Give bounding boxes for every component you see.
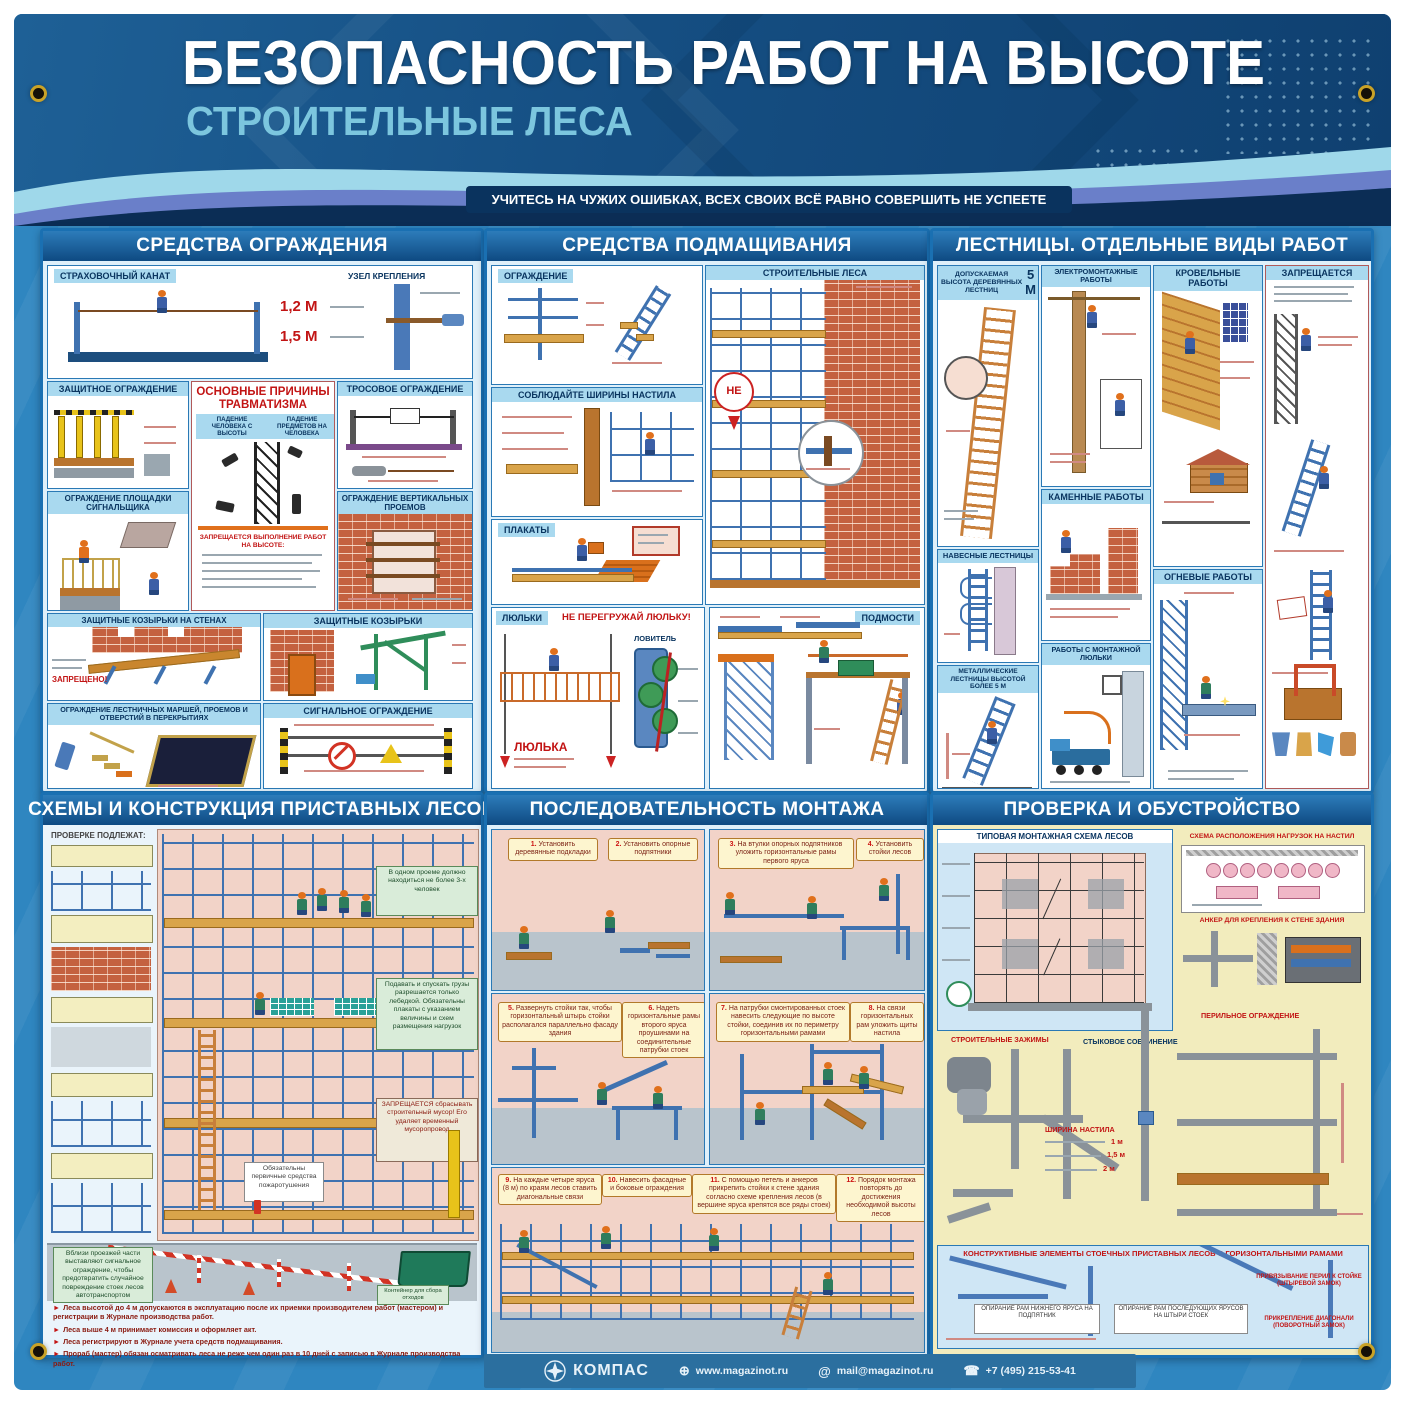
note-winch: Подавать и спускать грузы разрешается то…	[376, 978, 478, 1050]
attachment-node-label: УЗЕЛ КРЕПЛЕНИЯ	[348, 271, 425, 281]
card-assembly-scheme: ТИПОВАЯ МОНТАЖНАЯ СХЕМА ЛЕСОВ	[937, 829, 1173, 1031]
clamp-illustration	[386, 318, 442, 323]
card-vertical-openings: ОГРАЖДЕНИЕ ВЕРТИКАЛЬНЫХ ПРОЕМОВ	[337, 491, 473, 611]
forbidden-label: ЗАПРЕЩАЕТСЯ	[1266, 266, 1368, 280]
catcher-label: ЛОВИТЕЛЬ	[634, 634, 676, 643]
ground-scene: Вблизи проезжей части выставляют сигналь…	[47, 1243, 477, 1301]
overload-warning: НЕ ПЕРЕГРУЖАЙ ЛЮЛЬКУ!	[562, 612, 691, 623]
deck-widths-label: СОБЛЮДАЙТЕ ШИРИНЫ НАСТИЛА	[492, 388, 702, 402]
element-note-4: ПРИКРЕПЛЕНИЕ ДИАГОНАЛИ (ПОВОРОТНЫЙ ЗАМОК…	[1256, 1316, 1362, 1330]
card-hanging-ladders: НАВЕСНЫЕ ЛЕСТНИЦЫ	[937, 549, 1039, 663]
waste-container	[397, 1251, 471, 1287]
step-callout: 9. На каждые четыре яруса (8 м) по краям…	[498, 1174, 602, 1205]
card-cable-fence: ТРОСОВОЕ ОГРАЖДЕНИЕ	[337, 381, 473, 489]
tower-silhouette	[254, 442, 280, 524]
brand-name: КОМПАС	[573, 1362, 649, 1380]
card-deck-widths: СОБЛЮДАЙТЕ ШИРИНЫ НАСТИЛА	[491, 387, 703, 517]
card-structural-elements: КОНСТРУКТИВНЫЕ ЭЛЕМЕНТЫ СТОЕЧНЫХ ПРИСТАВ…	[937, 1245, 1369, 1349]
badge-detail	[946, 981, 972, 1007]
protective-canopies-label: ЗАЩИТНЫЕ КОЗЫРЬКИ	[264, 614, 472, 628]
rail-fence-label: ПЕРИЛЬНОЕ ОГРАЖДЕНИЕ	[1201, 1011, 1299, 1020]
note-fire-safety: Обязательны первичные средства пожаротуш…	[244, 1162, 324, 1202]
card-roofing-works: КРОВЕЛЬНЫЕ РАБОТЫ	[1153, 265, 1263, 567]
step-callout: 2. Установить опорные подпятники	[608, 838, 698, 861]
panel-scaffolding-means-title: СРЕДСТВА ПОДМАЩИВАНИЯ	[487, 231, 927, 261]
poster-title: БЕЗОПАСНОСТЬ РАБОТ НА ВЫСОТЕ	[182, 28, 1265, 99]
banned-label: ЗАПРЕЩЕНО!	[52, 675, 107, 684]
assembly-stage-1-2: 1. Установить деревянные подкладки 2. Ус…	[491, 829, 705, 991]
log-house	[1190, 451, 1246, 491]
electrical-works-label: ЭЛЕКТРОМОНТАЖНЫЕ РАБОТЫ	[1042, 266, 1150, 287]
safety-poster: БЕЗОПАСНОСТЬ РАБОТ НА ВЫСОТЕ СТРОИТЕЛЬНЫ…	[14, 14, 1391, 1390]
panel-ladders-works-title: ЛЕСТНИЦЫ. ОТДЕЛЬНЫЕ ВИДЫ РАБОТ	[933, 231, 1371, 261]
beam-illustration	[68, 352, 268, 362]
card-posters: ПЛАКАТЫ	[491, 519, 703, 605]
check-item-box	[51, 1073, 153, 1097]
roof-slope	[1162, 291, 1220, 430]
rules-list: ►Леса высотой до 4 м допускаются в экспл…	[53, 1303, 473, 1371]
card-cradles: ЛЮЛЬКИ НЕ ПЕРЕГРУЖАЙ ЛЮЛЬКУ! ЛЮЛЬКА ЛОВИ…	[491, 607, 705, 789]
brand-block: КОМПАС	[544, 1360, 649, 1382]
footer-bar: КОМПАС ⊕www.magazinot.ru @mail@magazinot…	[484, 1354, 1136, 1388]
person-silhouette	[292, 494, 301, 514]
card-trestles: ПОДМОСТИ	[709, 607, 925, 789]
check-detail-pic	[51, 1027, 151, 1067]
wooden-ladders-label: ДОПУСКАЕМАЯ ВЫСОТА ДЕРЕВЯННЫХ ЛЕСТНИЦ	[940, 271, 1023, 294]
assembly-scheme-label: ТИПОВАЯ МОНТАЖНАЯ СХЕМА ЛЕСОВ	[938, 830, 1172, 843]
welder-figure	[1200, 676, 1212, 700]
panel-schemes-title: СХЕМЫ И КОНСТРУКЦИЯ ПРИСТАВНЫХ ЛЕСОВ	[43, 795, 481, 825]
panel-fencing: СРЕДСТВА ОГРАЖДЕНИЯ СТРАХОВОЧНЫЙ КАНАТ У…	[40, 228, 484, 794]
grommet	[1361, 1346, 1372, 1357]
check-item-box	[51, 915, 153, 943]
card-wooden-ladders: ДОПУСКАЕМАЯ ВЫСОТА ДЕРЕВЯННЫХ ЛЕСТНИЦ 5 …	[937, 265, 1039, 547]
guardrail-label: ОГРАЖДЕНИЕ	[498, 269, 573, 283]
compass-logo-icon	[544, 1360, 566, 1382]
check-item-box	[51, 997, 153, 1023]
note-road-fence: Вблизи проезжей части выставляют сигналь…	[53, 1247, 153, 1303]
grommet	[33, 1346, 44, 1357]
truck-body	[1052, 749, 1110, 765]
block-stack	[270, 998, 314, 1016]
injury-causes-title: ОСНОВНЫЕ ПРИЧИНЫ ТРАВМАТИЗМА	[192, 386, 334, 411]
card-safety-rope: СТРАХОВОЧНЫЙ КАНАТ УЗЕЛ КРЕПЛЕНИЯ 1,2 М …	[47, 265, 473, 379]
element-note-3: ПРИВЯЗЫВАНИЕ ПЕРИЛ К СТОЙКЕ (ШТЫРЕВОЙ ЗА…	[1256, 1274, 1362, 1288]
worker-figure	[156, 290, 168, 314]
height-1-5m: 1,5 М	[280, 328, 318, 345]
card-protective-fence: ЗАЩИТНОЕ ОГРАЖДЕНИЕ	[47, 381, 189, 489]
globe-icon: ⊕	[679, 1363, 690, 1379]
roofing-works-label: КРОВЕЛЬНЫЕ РАБОТЫ	[1154, 266, 1262, 291]
cause-fall-objects: ПАДЕНИЕ ПРЕДМЕТОВ НА ЧЕЛОВЕКА	[266, 414, 334, 439]
boom-arm	[1064, 711, 1111, 744]
card-hot-works: ОГНЕВЫЕ РАБОТЫ	[1153, 569, 1263, 789]
check-detail-pic	[51, 1183, 151, 1233]
rule-item: ►Прораб (мастер) обязан осматривать леса…	[53, 1349, 473, 1368]
panel-ladders-works: ЛЕСТНИЦЫ. ОТДЕЛЬНЫЕ ВИДЫ РАБОТ ДОПУСКАЕМ…	[930, 228, 1374, 794]
anchor-label: АНКЕР ДЛЯ КРЕПЛЕНИЯ К СТЕНЕ ЗДАНИЯ	[1181, 917, 1363, 924]
assembly-stage-9-12: 9. На каждые четыре яруса (8 м) по краям…	[491, 1167, 925, 1353]
fire-extinguisher	[254, 1200, 261, 1214]
panel-inspection: ПРОВЕРКА И ОБУСТРОЙСТВО ТИПОВАЯ МОНТАЖНА…	[930, 792, 1374, 1358]
stool-silhouette	[1294, 664, 1336, 696]
card-protective-canopies: ЗАЩИТНЫЕ КОЗЫРЬКИ	[263, 613, 473, 701]
step-callout: 6. Надеть горизонтальные рамы второго яр…	[622, 1002, 704, 1058]
check-detail-pic	[51, 947, 151, 991]
posters-label: ПЛАКАТЫ	[498, 523, 555, 537]
panel-schemes: СХЕМЫ И КОНСТРУКЦИЯ ПРИСТАВНЫХ ЛЕСОВ ПРО…	[40, 792, 484, 1358]
footer-email: @mail@magazinot.ru	[818, 1364, 933, 1379]
joint-pipe	[1141, 1005, 1149, 1115]
check-item-box	[51, 1153, 153, 1179]
panel-inspection-title: ПРОВЕРКА И ОБУСТРОЙСТВО	[933, 795, 1371, 825]
solar-panel	[1222, 303, 1248, 343]
step-callout: 10. Навесить фасадные и боковые огражден…	[602, 1174, 692, 1197]
structural-elements-title: КОНСТРУКТИВНЫЕ ЭЛЕМЕНТЫ СТОЕЧНЫХ ПРИСТАВ…	[938, 1249, 1368, 1258]
signaler-platform-label: ОГРАЖДЕНИЕ ПЛОЩАДКИ СИГНАЛЬЩИКА	[48, 492, 188, 514]
panel-assembly-sequence-title: ПОСЛЕДОВАТЕЛЬНОСТЬ МОНТАЖА	[487, 795, 927, 825]
assembly-stage-3-4: 3. На втулки опорных подпятников уложить…	[709, 829, 925, 991]
loads-scheme-box	[1181, 845, 1365, 913]
note-no-debris: ЗАПРЕЩАЕТСЯ сбрасывать строительный мусо…	[376, 1098, 478, 1162]
signaler-figure	[78, 540, 90, 564]
wooden-ladders-height: 5 М	[1025, 268, 1036, 298]
hot-works-label: ОГНЕВЫЕ РАБОТЫ	[1154, 570, 1262, 584]
element-note-1: ОПИРАНИЕ РАМ НИЖНЕГО ЯРУСА НА ПОДПЯТНИК	[974, 1304, 1100, 1334]
email-icon: @	[818, 1364, 831, 1379]
protective-fence-label: ЗАЩИТНОЕ ОГРАЖДЕНИЕ	[48, 382, 188, 396]
rule-item: ►Леса выше 4 м принимает комиссия и офор…	[53, 1325, 473, 1334]
card-signaler-platform: ОГРАЖДЕНИЕ ПЛОЩАДКИ СИГНАЛЬЩИКА	[47, 491, 189, 611]
tower-scaffold	[724, 660, 774, 760]
step-callout: 1. Установить деревянные подкладки	[508, 838, 598, 861]
card-injury-causes: ОСНОВНЫЕ ПРИЧИНЫ ТРАВМАТИЗМА ПАДЕНИЕ ЧЕЛ…	[191, 381, 335, 611]
building-strip	[1122, 671, 1144, 777]
grommet	[1361, 88, 1372, 99]
check-detail-pic	[51, 871, 151, 911]
stair-openings-label: ОГРАЖДЕНИЕ ЛЕСТНИЧНЫХ МАРШЕЙ, ПРОЕМОВ И …	[48, 704, 260, 725]
step-callout: 11. С помощью петель и анкеров прикрепит…	[692, 1174, 836, 1214]
panel-fencing-title: СРЕДСТВА ОГРАЖДЕНИЯ	[43, 231, 481, 261]
magnifier-detail	[944, 356, 988, 400]
assembly-stage-7-8: 7. На патрубки смонтированных стоек наве…	[709, 993, 925, 1165]
check-detail-pic	[51, 1101, 151, 1147]
element-note-2: ОПИРАНИЕ РАМ ПОСЛЕДУЮЩИХ ЯРУСОВ НА ШТЫРИ…	[1114, 1304, 1248, 1334]
construction-scaffolds-label: СТРОИТЕЛЬНЫЕ ЛЕСА	[706, 266, 924, 280]
vertical-openings-label: ОГРАЖДЕНИЕ ВЕРТИКАЛЬНЫХ ПРОЕМОВ	[338, 492, 472, 514]
masonry-works-label: КАМЕННЫЕ РАБОТЫ	[1042, 490, 1150, 504]
rule-item: ►Леса высотой до 4 м допускаются в экспл…	[53, 1303, 473, 1322]
joint-label: СТЫКОВОЕ СОЕДИНЕНИЕ	[1083, 1037, 1178, 1046]
metal-ladders-label: МЕТАЛЛИЧЕСКИЕ ЛЕСТНИЦЫ ВЫСОТОЙ БОЛЕЕ 5 М	[938, 666, 1038, 693]
cradles-label: ЛЮЛЬКИ	[496, 611, 548, 625]
wooden-ladder	[960, 307, 1016, 539]
cradle-illustration	[500, 672, 620, 702]
clamps-illustration	[943, 1049, 1128, 1239]
panel-assembly-sequence: ПОСЛЕДОВАТЕЛЬНОСТЬ МОНТАЖА 1. Установить…	[484, 792, 930, 1358]
step-callout: 8. На связи горизонтальных рам уложить щ…	[850, 1002, 924, 1042]
card-signal-fence: СИГНАЛЬНОЕ ОГРАЖДЕНИЕ	[263, 703, 473, 789]
safety-rope-line	[78, 310, 258, 312]
card-guardrail: ОГРАЖДЕНИЕ	[491, 265, 703, 385]
note-max-people: В одном проеме должно находиться не боле…	[376, 866, 478, 916]
forbidden-works-note: ЗАПРЕЩАЕТСЯ ВЫПОЛНЕНИЕ РАБОТ НА ВЫСОТЕ:	[196, 534, 330, 549]
chute-pole	[448, 1130, 460, 1218]
check-list-title: ПРОВЕРКЕ ПОДЛЕЖАТ:	[51, 831, 146, 840]
cradle-red-label: ЛЮЛЬКА	[514, 740, 567, 754]
step-callout: 7. На патрубки смонтированных стоек наве…	[716, 1002, 850, 1042]
rail-fence-illustration	[1173, 1023, 1363, 1239]
safety-rope-label: СТРАХОВОЧНЫЙ КАНАТ	[54, 269, 176, 283]
step-callout: 12. Порядок монтажа повторять до достиже…	[836, 1174, 924, 1222]
step-callout: 3. На втулки опорных подпятников уложить…	[718, 838, 854, 869]
grommet	[33, 88, 44, 99]
note-container: Контейнер для сбора отходов	[377, 1285, 449, 1305]
cable-fence-label: ТРОСОВОЕ ОГРАЖДЕНИЕ	[338, 382, 472, 396]
anchor-illustration	[1181, 927, 1363, 991]
card-forbidden: ЗАПРЕЩАЕТСЯ	[1265, 265, 1369, 789]
step-callout: 4. Установить стойки лесов	[856, 838, 924, 861]
card-lift-cradle-works: РАБОТЫ С МОНТАЖНОЙ ЛЮЛЬКИ	[1041, 643, 1151, 789]
wall-canopies-label: ЗАЩИТНЫЕ КОЗЫРЬКИ НА СТЕНАХ	[48, 614, 260, 627]
lift-cradle-works-label: РАБОТЫ С МОНТАЖНОЙ ЛЮЛЬКИ	[1042, 644, 1150, 665]
wide-scaffold-illustration	[500, 1224, 914, 1320]
card-metal-ladders: МЕТАЛЛИЧЕСКИЕ ЛЕСТНИЦЫ ВЫСОТОЙ БОЛЕЕ 5 М	[937, 665, 1039, 789]
main-scaffold-scene: В одном проеме должно находиться не боле…	[157, 829, 479, 1241]
phone-icon: ☎	[963, 1363, 979, 1379]
rule-item: ►Леса регистрируют в Журнале учета средс…	[53, 1337, 473, 1346]
motto-banner: УЧИТЕСЬ НА ЧУЖИХ ОШИБКАХ, ВСЕХ СВОИХ ВСЁ…	[466, 186, 1072, 213]
column-illustration	[394, 284, 410, 370]
utility-pole	[1072, 291, 1086, 473]
clamps-label: СТРОИТЕЛЬНЫЕ ЗАЖИМЫ	[951, 1035, 1049, 1044]
block-stack	[334, 998, 378, 1016]
hanging-ladders-label: НАВЕСНЫЕ ЛЕСТНИЦЫ	[938, 550, 1038, 563]
card-construction-scaffolds: СТРОИТЕЛЬНЫЕ ЛЕСА НЕ	[705, 265, 925, 605]
loads-scheme-label: СХЕМА РАСПОЛОЖЕНИЯ НАГРУЗОК НА НАСТИЛ	[1181, 833, 1363, 840]
card-masonry-works: КАМЕННЫЕ РАБОТЫ	[1041, 489, 1151, 641]
cause-fall-person: ПАДЕНИЕ ЧЕЛОВЕКА С ВЫСОТЫ	[196, 414, 268, 439]
card-electrical-works: ЭЛЕКТРОМОНТАЖНЫЕ РАБОТЫ	[1041, 265, 1151, 487]
check-item-box	[51, 845, 153, 867]
step-callout: 5. Развернуть стойки так, чтобы горизонт…	[498, 1002, 622, 1042]
assembly-stage-5-6: 5. Развернуть стойки так, чтобы горизонт…	[491, 993, 705, 1165]
panel-scaffolding-means: СРЕДСТВА ПОДМАЩИВАНИЯ ОГРАЖДЕНИЕ	[484, 228, 930, 794]
steel-beam	[1182, 704, 1256, 716]
footer-site: ⊕www.magazinot.ru	[679, 1363, 788, 1379]
poster-page: БЕЗОПАСНОСТЬ РАБОТ НА ВЫСОТЕ СТРОИТЕЛЬНЫ…	[0, 0, 1405, 1404]
height-1-2m: 1,2 М	[280, 298, 318, 315]
footer-phone: ☎+7 (495) 215-53-41	[963, 1363, 1075, 1379]
trestles-label: ПОДМОСТИ	[855, 611, 920, 625]
card-stair-openings: ОГРАЖДЕНИЕ ЛЕСТНИЧНЫХ МАРШЕЙ, ПРОЕМОВ И …	[47, 703, 261, 789]
deck-width-label: ШИРИНА НАСТИЛА	[1045, 1125, 1115, 1134]
worker-figure	[148, 572, 160, 596]
signal-fence-label: СИГНАЛЬНОЕ ОГРАЖДЕНИЕ	[264, 704, 472, 718]
card-wall-canopies: ЗАЩИТНЫЕ КОЗЫРЬКИ НА СТЕНАХ ЗАПРЕЩЕНО!	[47, 613, 261, 701]
steel-column	[1160, 600, 1188, 750]
